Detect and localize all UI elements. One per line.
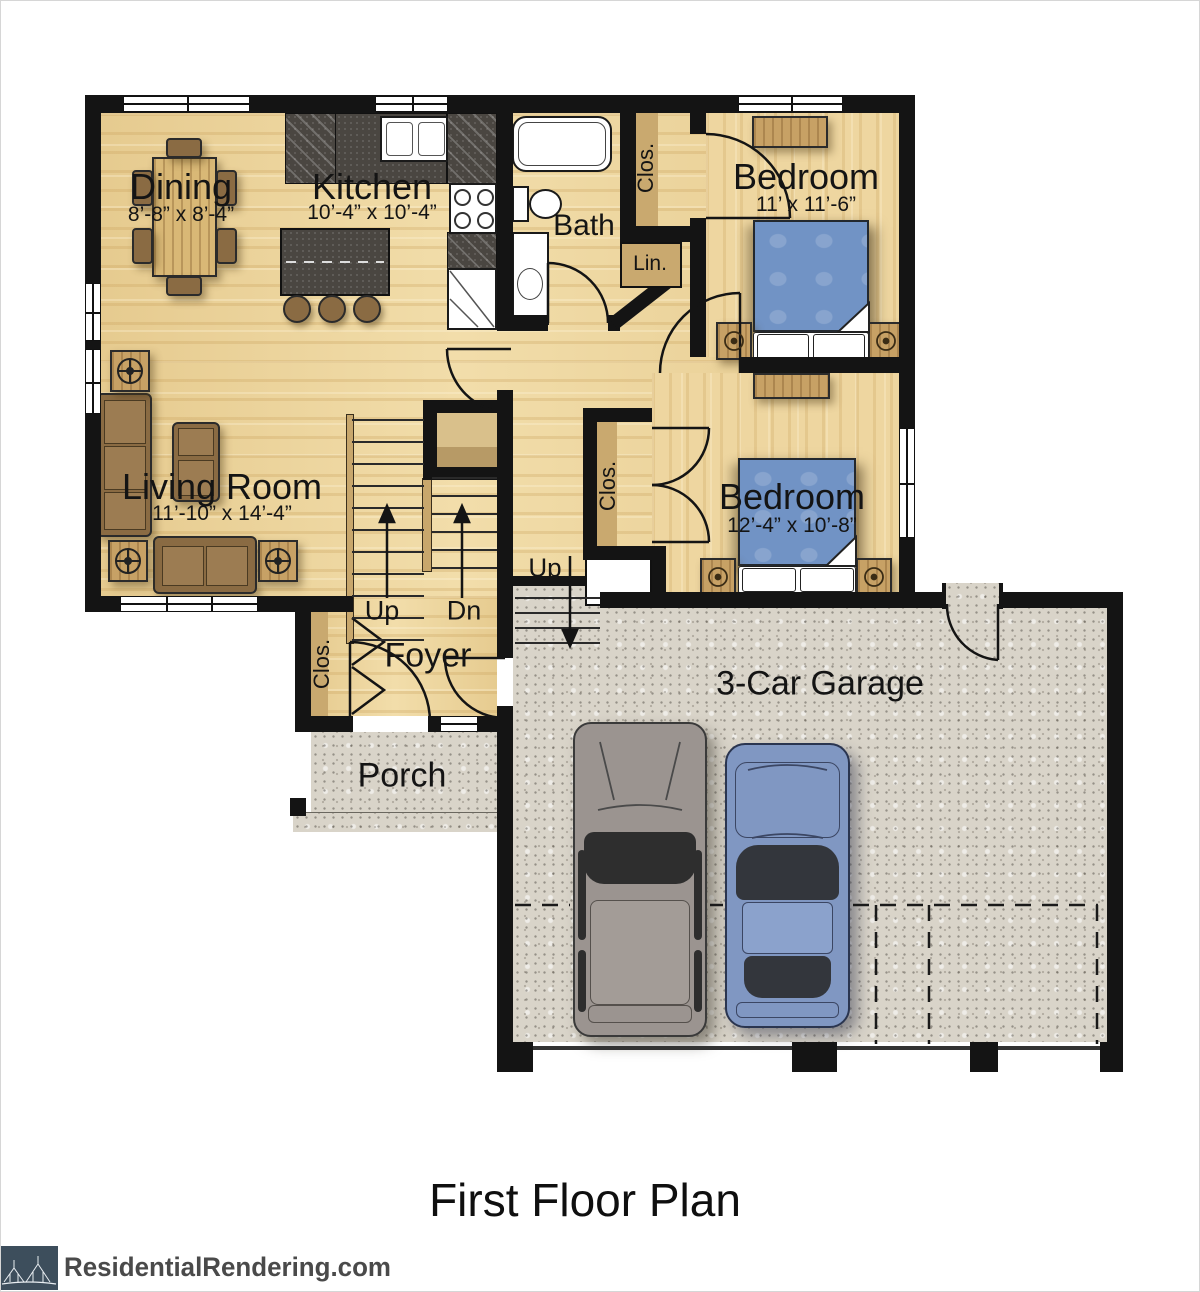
- suv-window-right-2: [694, 950, 702, 1012]
- floor-plan-page: Dining 8’-8” x 8’-4” Kitchen 10’-4” x 10…: [0, 0, 1200, 1292]
- wall-understair-bottom: [423, 467, 497, 480]
- understair-closet-band: [437, 447, 497, 467]
- end-table-3: [258, 540, 298, 582]
- bedroom2-nightstand-left: [700, 558, 736, 596]
- garage-south-pier-2: [792, 1042, 837, 1072]
- stair-mid-stringer: [422, 478, 432, 572]
- bedroom2-pillow-1: [742, 568, 796, 592]
- bedroom1-label: Bedroom: [733, 156, 879, 198]
- armchair-back: [178, 428, 214, 456]
- bathtub-inner: [518, 122, 606, 166]
- service-door-jamb-r: [999, 583, 1003, 609]
- garage-stairs-up-label: Up: [528, 553, 561, 584]
- dining-label: Dining: [130, 166, 232, 208]
- island-stool-2: [318, 295, 346, 323]
- window-dining-top: [123, 96, 250, 112]
- bedroom2-dims: 12’-4” x 10’-8”: [727, 514, 857, 538]
- stairs-up-label: Up: [365, 596, 400, 627]
- porch-label: Porch: [358, 757, 447, 796]
- foyer-label: Foyer: [385, 637, 472, 676]
- window-left-upper: [85, 283, 101, 341]
- kitchen-dims: 10’-4” x 10’-4”: [307, 201, 437, 225]
- suv-roof: [590, 900, 690, 1005]
- window-foyer-south: [440, 716, 478, 732]
- wall-bedroom1-west-a: [690, 112, 706, 134]
- burner-1: [454, 189, 471, 206]
- logo-icon: [0, 1246, 58, 1290]
- foyer-closet-label: Clos.: [309, 639, 335, 689]
- dining-chair-bottom: [166, 276, 202, 296]
- suv-window-left-1: [578, 850, 586, 940]
- service-door-jamb-l: [942, 583, 946, 609]
- refrigerator: [447, 268, 497, 330]
- kitchen-counter-right: [447, 232, 497, 270]
- wall-stairs-east-b: [497, 706, 513, 1058]
- toilet-tank: [512, 186, 529, 222]
- suv-rear-band: [588, 1005, 692, 1023]
- bedroom2-pillow-2: [800, 568, 854, 592]
- dining-chair-l2: [132, 228, 153, 264]
- porch-step-block: [290, 798, 306, 816]
- vanity-sink: [517, 268, 543, 300]
- blue-car-rear-window: [744, 956, 831, 998]
- bedroom1-dims: 11’ x 11’-6”: [756, 193, 856, 217]
- window-bedroom2-right: [899, 428, 915, 538]
- suv-window-right-1: [694, 850, 702, 940]
- wall-bedroom-divider: [740, 357, 915, 373]
- burner-2: [477, 189, 494, 206]
- wall-bedroom1-west-b: [690, 218, 706, 357]
- plan-title: First Floor Plan: [429, 1173, 741, 1227]
- bedroom1-bed: [753, 220, 869, 332]
- sink-basin-right: [418, 122, 445, 156]
- wall-closet2-south: [583, 546, 652, 560]
- end-table-2: [108, 540, 148, 582]
- burner-4: [477, 212, 494, 229]
- garage-label: 3-Car Garage: [716, 665, 924, 704]
- burner-3: [454, 212, 471, 229]
- dining-chair-r2: [216, 228, 237, 264]
- bedroom1-nightstand-left: [716, 322, 752, 360]
- island-stool-3: [353, 295, 381, 323]
- window-bedroom1-top: [738, 96, 843, 112]
- wall-garage-north-b: [1000, 592, 1107, 608]
- garage-south-corner: [1100, 1042, 1123, 1072]
- loveseat-cushion-1: [162, 546, 204, 586]
- island-stool-1: [283, 295, 311, 323]
- garage-south-pier-3: [970, 1042, 998, 1072]
- wall-garage-east: [1107, 592, 1123, 1058]
- hall-closet-label: Clos.: [633, 143, 659, 193]
- blue-car-hood: [735, 762, 840, 838]
- loveseat-cushion-2: [206, 546, 248, 586]
- linen-label: Lin.: [633, 252, 667, 276]
- wall-kitchen-bath: [497, 112, 513, 315]
- garage-south-pier-1: [497, 1042, 533, 1072]
- window-kitchen-top: [375, 96, 448, 112]
- bedroom2-closet-label: Clos.: [595, 461, 621, 511]
- bedroom1-dresser: [752, 116, 828, 148]
- garage-door-line-1: [533, 1046, 792, 1050]
- bedroom2-nightstand-right: [856, 558, 892, 596]
- blue-car-roof: [742, 902, 833, 954]
- window-living-bottom: [120, 596, 258, 612]
- blue-car-windshield: [736, 845, 839, 900]
- garage-door-line-2: [837, 1046, 970, 1050]
- living-room-dims: 11’-10” x 14’-4”: [152, 502, 292, 526]
- window-left-lower: [85, 349, 101, 414]
- bath-label: Bath: [553, 209, 615, 243]
- garage-door-line-3: [998, 1046, 1100, 1050]
- dining-chair-top: [166, 138, 202, 158]
- kitchen-island: [280, 228, 390, 296]
- kitchen-corner-pantry: [447, 113, 497, 184]
- wall-foyer-south-b: [428, 716, 440, 732]
- wall-bath-south-a: [497, 315, 548, 331]
- bedroom2-label: Bedroom: [719, 476, 865, 518]
- bedroom2-dresser: [753, 373, 830, 399]
- blue-car-trunk: [736, 1002, 839, 1018]
- service-door-recess: [945, 583, 1000, 609]
- stairs-down-label: Dn: [447, 596, 482, 627]
- logo-text: ResidentialRendering.com: [64, 1252, 391, 1283]
- suv-windshield: [584, 832, 696, 884]
- wall-garage-north-a: [600, 592, 945, 608]
- wall-stairs-east-a: [497, 390, 513, 658]
- dining-dims: 8’-8” x 8’-4”: [128, 203, 234, 227]
- suv-window-left-2: [578, 950, 586, 1012]
- porch-step: [293, 812, 497, 832]
- sofa-cushion-1: [104, 400, 146, 444]
- wall-foyer-south-a: [295, 716, 353, 732]
- end-table-1: [110, 350, 150, 392]
- sink-basin-left: [386, 122, 413, 156]
